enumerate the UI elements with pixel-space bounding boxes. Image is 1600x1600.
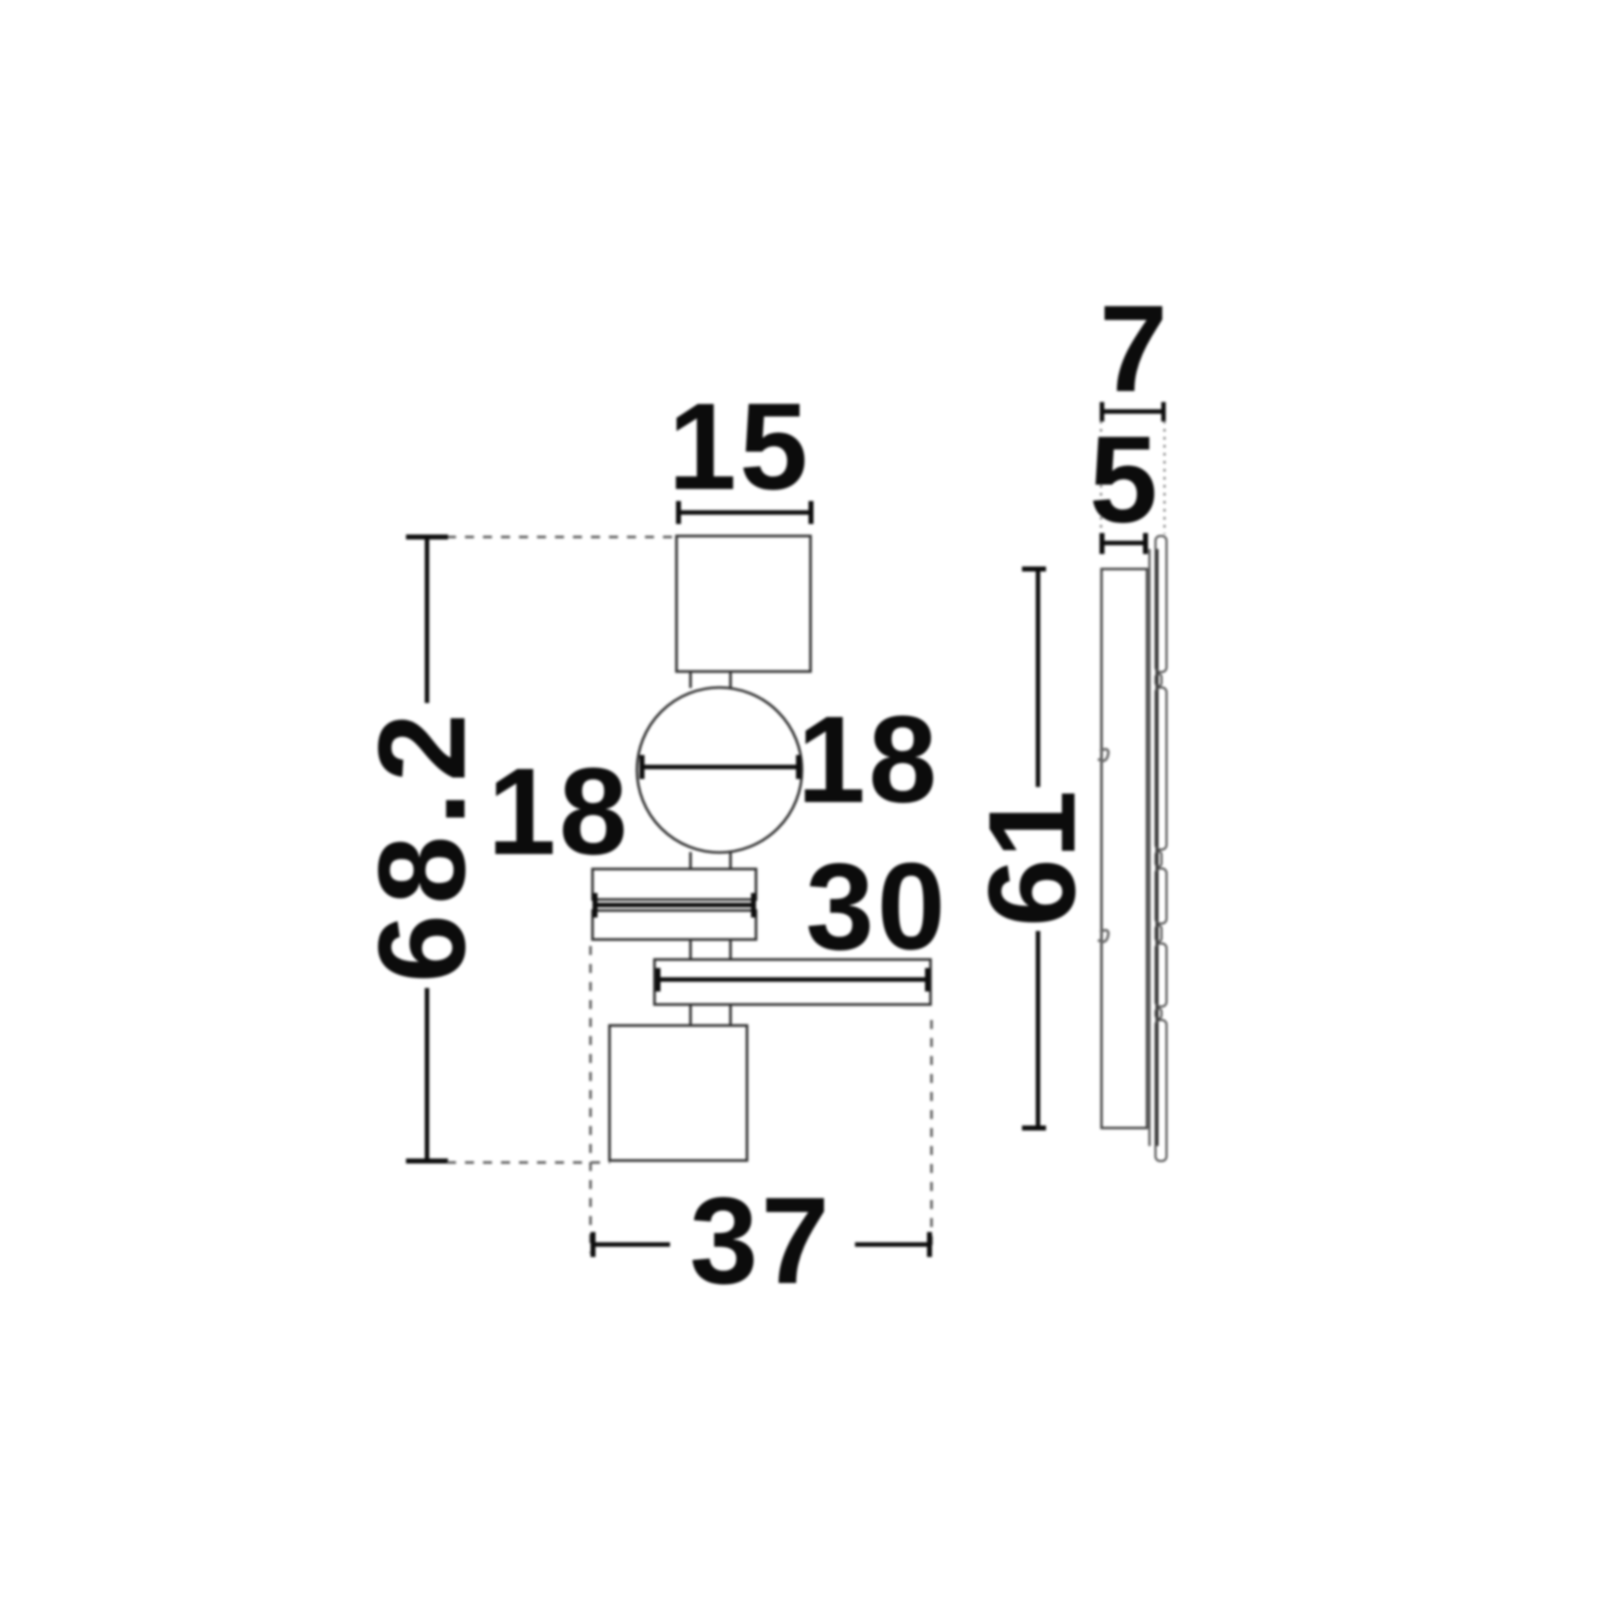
- svg-text:5: 5: [1089, 412, 1157, 549]
- svg-text:68.2: 68.2: [355, 703, 492, 982]
- svg-text:7: 7: [1099, 281, 1167, 418]
- svg-text:30: 30: [806, 839, 949, 976]
- svg-text:18: 18: [488, 744, 631, 881]
- svg-text:37: 37: [690, 1173, 833, 1310]
- svg-text:18: 18: [797, 692, 940, 829]
- svg-text:61: 61: [965, 790, 1102, 927]
- svg-text:15: 15: [668, 379, 811, 516]
